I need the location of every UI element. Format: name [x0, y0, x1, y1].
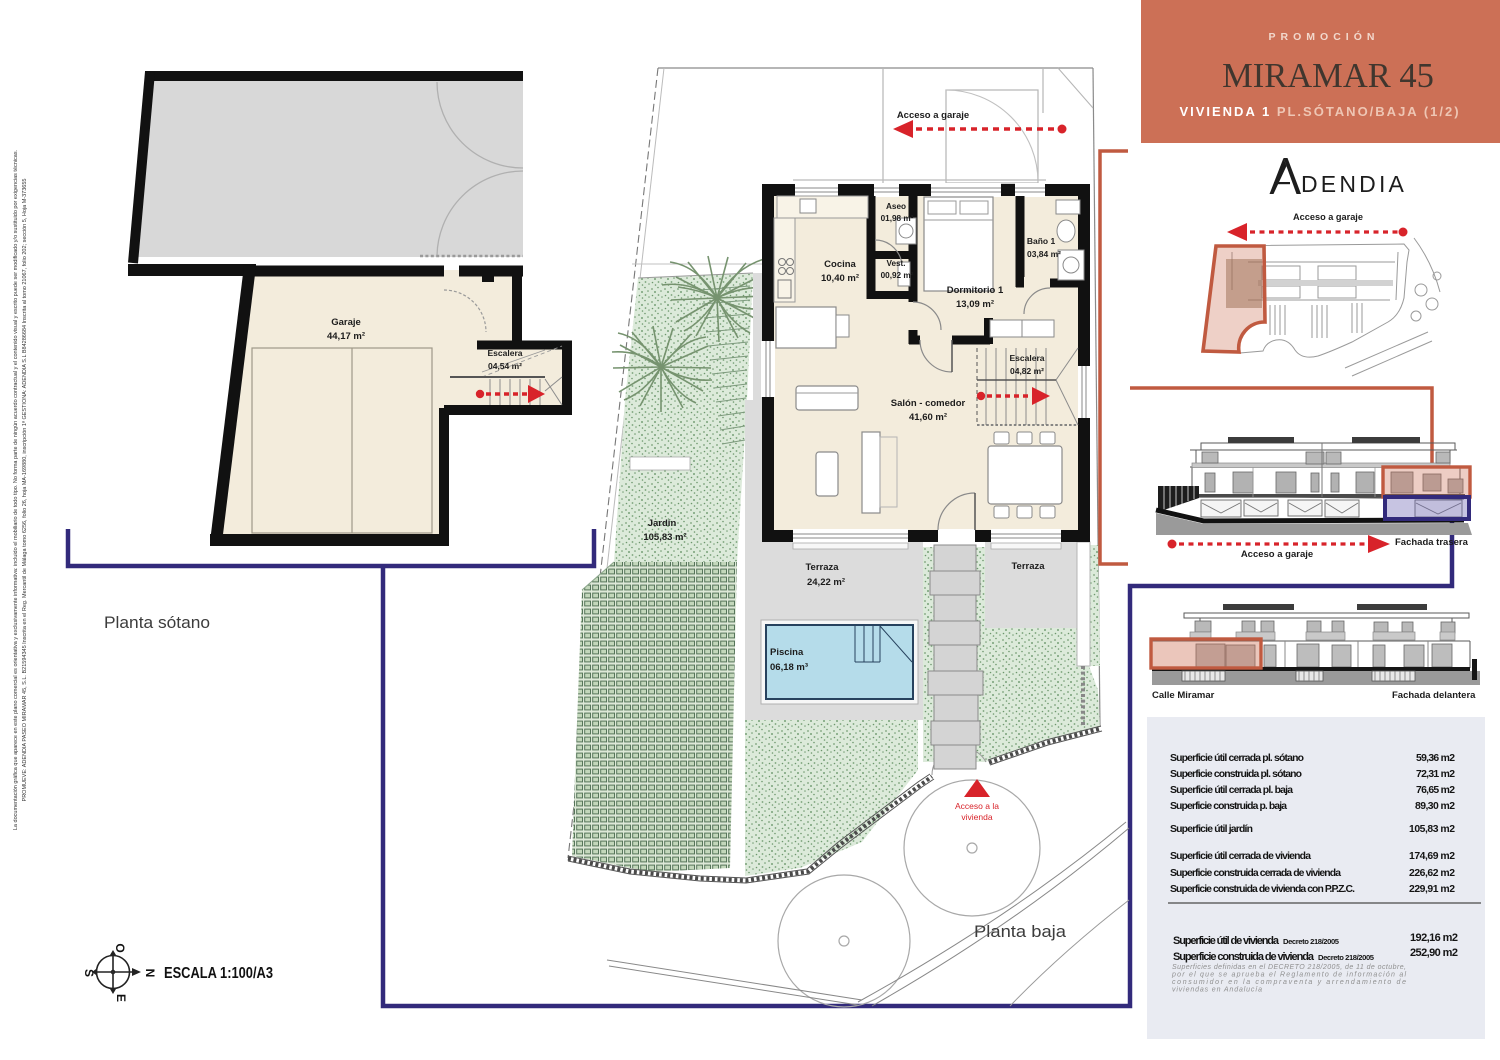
svg-text:06,18 m³: 06,18 m³: [770, 662, 808, 673]
svg-text:Superficie construida de vivie: Superficie construida de vivienda: [1173, 951, 1315, 963]
svg-text:PROMUEVE: ADENDIA PASEO MIRAMA: PROMUEVE: ADENDIA PASEO MIRAMAR 45, S.L.…: [21, 179, 28, 802]
svg-text:Salón - comedor: Salón - comedor: [891, 398, 966, 409]
svg-text:Superficies definidas en el DE: Superficies definidas en el DECRETO 218/…: [1172, 964, 1406, 971]
svg-text:Fachada delantera: Fachada delantera: [1392, 690, 1476, 701]
svg-text:Terraza: Terraza: [805, 562, 839, 573]
svg-text:Escalera: Escalera: [488, 348, 523, 358]
svg-text:24,22 m²: 24,22 m²: [807, 577, 845, 588]
svg-text:MIRAMAR 45: MIRAMAR 45: [1222, 57, 1434, 95]
svg-text:229,91 m2: 229,91 m2: [1409, 884, 1455, 895]
svg-text:Planta baja: Planta baja: [974, 922, 1067, 941]
svg-text:Superficie construida p. baja: Superficie construida p. baja: [1170, 801, 1287, 812]
svg-text:105,83 m2: 105,83 m2: [1409, 824, 1455, 835]
svg-text:Superficie útil cerrada pl. só: Superficie útil cerrada pl. sótano: [1170, 753, 1304, 764]
svg-text:13,09 m²: 13,09 m²: [956, 299, 994, 310]
svg-text:Superficie construida de vivie: Superficie construida de vivienda con P.…: [1170, 884, 1355, 895]
svg-text:Baño 1: Baño 1: [1027, 236, 1056, 246]
svg-text:S: S: [82, 969, 96, 977]
svg-text:Escalera: Escalera: [1010, 353, 1045, 363]
svg-text:76,65 m2: 76,65 m2: [1416, 785, 1455, 796]
svg-text:viviendas en Andalucía: viviendas en Andalucía: [1172, 987, 1262, 994]
svg-text:01,98 m²: 01,98 m²: [881, 214, 914, 223]
svg-text:Cocina: Cocina: [824, 259, 856, 270]
svg-text:PROMOCIÓN: PROMOCIÓN: [1269, 30, 1380, 43]
svg-text:Acceso a garaje: Acceso a garaje: [1241, 549, 1313, 560]
svg-text:Jardín: Jardín: [648, 518, 677, 529]
svg-text:Planta sótano: Planta sótano: [104, 613, 210, 632]
svg-text:Acceso a garaje: Acceso a garaje: [897, 110, 969, 121]
svg-text:consumidor en la compraventa y: consumidor en la compraventa y arrendami…: [1172, 979, 1406, 986]
svg-text:Acceso a garaje: Acceso a garaje: [1293, 212, 1363, 222]
svg-text:105,83 m²: 105,83 m²: [643, 532, 686, 543]
svg-text:41,60 m²: 41,60 m²: [909, 412, 947, 423]
svg-text:72,31 m2: 72,31 m2: [1416, 769, 1455, 780]
svg-text:Fachada trasera: Fachada trasera: [1395, 537, 1469, 548]
svg-text:04,54 m²: 04,54 m²: [488, 361, 522, 371]
svg-text:por el que se aprueba el Regla: por el que se aprueba el Reglamento de i…: [1171, 972, 1406, 979]
svg-text:Superficie útil cerrada de viv: Superficie útil cerrada de vivienda: [1170, 851, 1311, 862]
svg-text:DENDIA: DENDIA: [1301, 171, 1407, 197]
svg-text:vivienda: vivienda: [961, 812, 992, 822]
svg-text:192,16 m2: 192,16 m2: [1410, 932, 1458, 944]
svg-text:Superficie construida cerrada: Superficie construida cerrada de viviend…: [1170, 868, 1341, 879]
svg-text:Vest.: Vest.: [886, 259, 905, 268]
svg-text:89,30 m2: 89,30 m2: [1415, 801, 1455, 812]
svg-text:Acceso a la: Acceso a la: [955, 801, 999, 811]
svg-text:Dormitorio 1: Dormitorio 1: [947, 285, 1004, 296]
svg-text:Superficie útil jardín: Superficie útil jardín: [1170, 824, 1253, 835]
svg-text:E: E: [114, 994, 128, 1002]
svg-text:44,17 m²: 44,17 m²: [327, 331, 365, 342]
svg-text:Terraza: Terraza: [1011, 561, 1045, 572]
svg-text:174,69 m2: 174,69 m2: [1409, 851, 1455, 862]
svg-text:226,62 m2: 226,62 m2: [1409, 868, 1455, 879]
svg-text:ESCALA 1:100/A3: ESCALA 1:100/A3: [164, 965, 273, 982]
svg-text:Decreto 218/2005: Decreto 218/2005: [1283, 937, 1340, 946]
svg-text:03,84 m²: 03,84 m²: [1027, 249, 1061, 259]
svg-text:Superficie útil de vivienda: Superficie útil de vivienda: [1173, 935, 1280, 947]
svg-text:Decreto 218/2005: Decreto 218/2005: [1318, 953, 1375, 962]
svg-text:00,92 m²: 00,92 m²: [881, 271, 914, 280]
svg-text:10,40 m²: 10,40 m²: [821, 273, 859, 284]
svg-text:Piscina: Piscina: [770, 647, 804, 658]
svg-text:Superficie construida pl. sóta: Superficie construida pl. sótano: [1170, 769, 1302, 780]
svg-text:Calle Miramar: Calle Miramar: [1152, 690, 1215, 701]
svg-text:Superficie útil cerrada pl. ba: Superficie útil cerrada pl. baja: [1170, 785, 1293, 796]
svg-text:La documentación gráfica que a: La documentación gráfica que aparece en …: [13, 149, 19, 830]
svg-text:59,36 m2: 59,36 m2: [1416, 753, 1455, 764]
svg-text:VIVIENDA 1 PL.SÓTANO/BAJA (1/: VIVIENDA 1 PL.SÓTANO/BAJA (1/2): [1179, 104, 1460, 119]
svg-text:O: O: [113, 943, 127, 952]
svg-text:Garaje: Garaje: [331, 317, 361, 328]
svg-text:Aseo: Aseo: [886, 202, 906, 211]
svg-text:252,90 m2: 252,90 m2: [1410, 947, 1458, 959]
svg-text:04,82 m²: 04,82 m²: [1010, 366, 1044, 376]
svg-text:N: N: [143, 969, 157, 978]
